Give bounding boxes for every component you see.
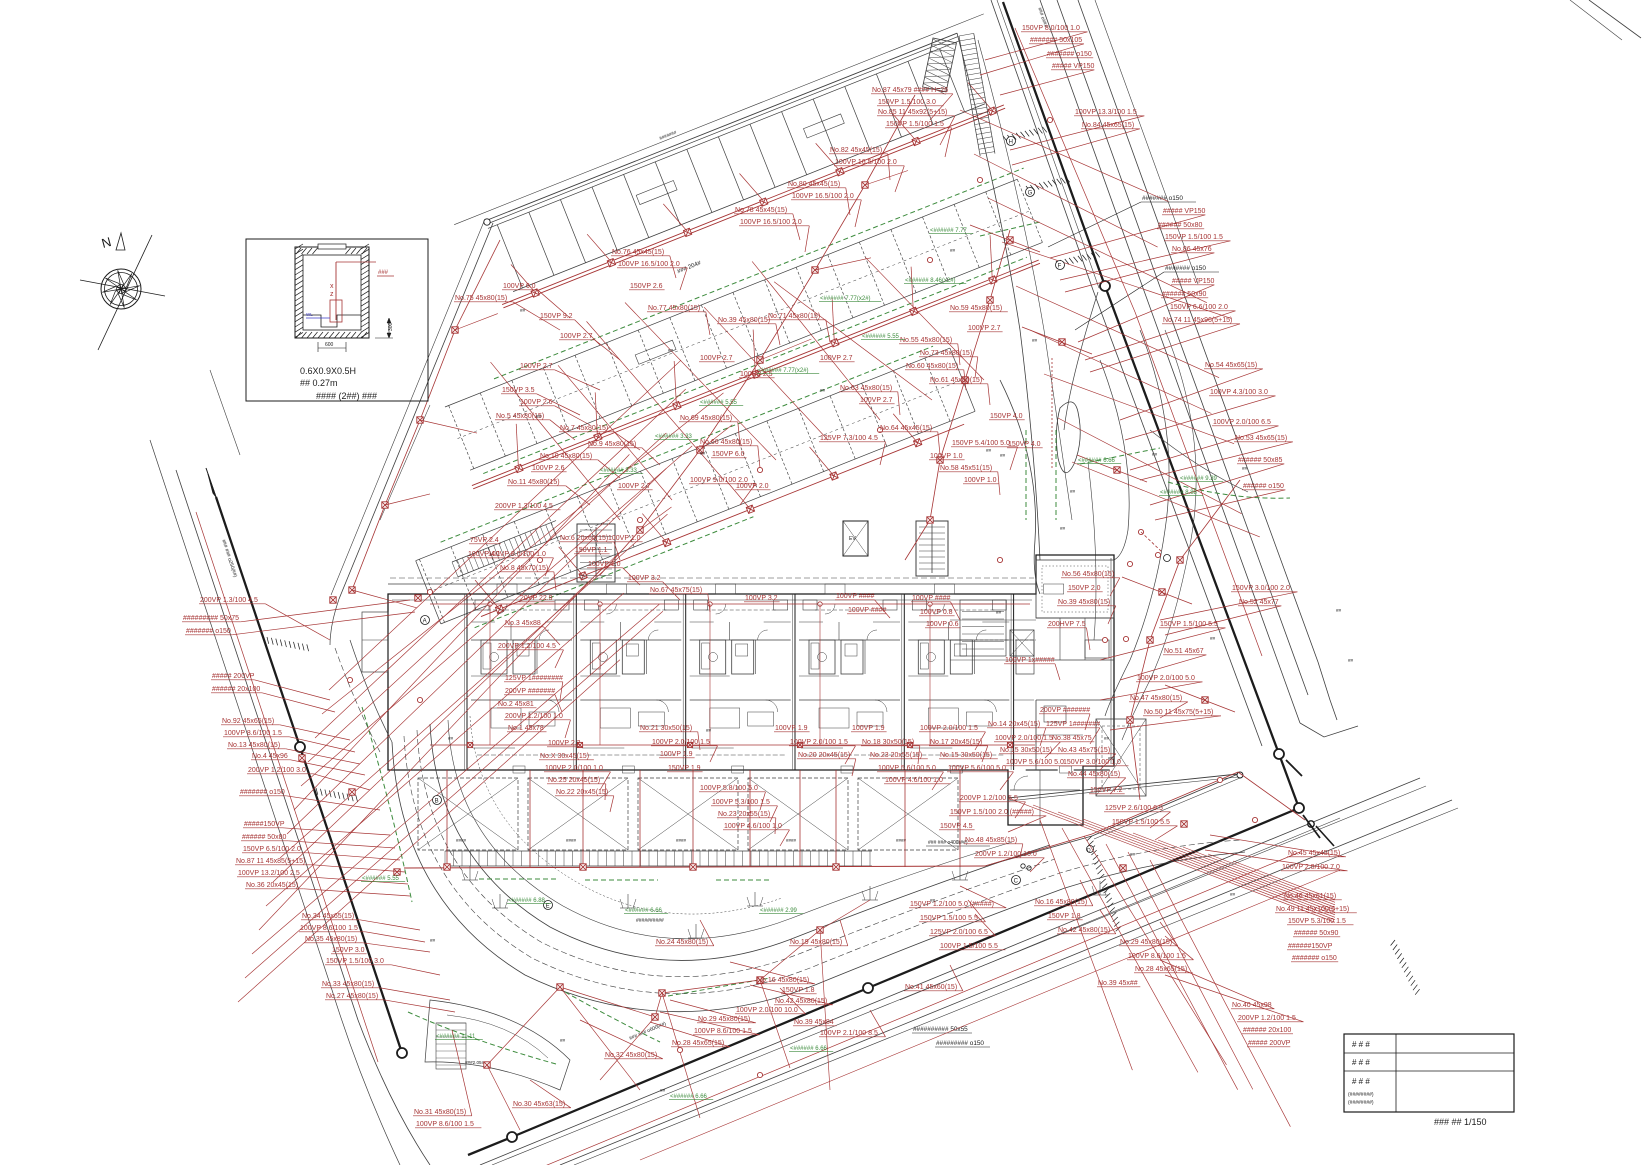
svg-text:##: ## bbox=[700, 451, 706, 456]
svg-text:###### 50x90: ###### 50x90 bbox=[1294, 930, 1338, 937]
svg-text:No.66 45x80(15): No.66 45x80(15) bbox=[700, 439, 752, 446]
svg-text:200VP 1.3/100 4.5: 200VP 1.3/100 4.5 bbox=[200, 597, 258, 604]
svg-text:No.17 20x45(15): No.17 20x45(15) bbox=[930, 739, 982, 746]
svg-text:No.1 45x78: No.1 45x78 bbox=[508, 725, 544, 732]
svg-text:No.4 45x96: No.4 45x96 bbox=[252, 753, 288, 760]
svg-text:150VP 5.3/100 1.5: 150VP 5.3/100 1.5 bbox=[1288, 918, 1346, 925]
svg-text:100VP 3.2: 100VP 3.2 bbox=[745, 595, 778, 602]
svg-text:##: ## bbox=[986, 448, 992, 453]
svg-text:<###### 8.46(x2#): <###### 8.46(x2#) bbox=[905, 278, 956, 284]
svg-text:##: ## bbox=[430, 938, 436, 943]
svg-text:150VP 2.0: 150VP 2.0 bbox=[1068, 585, 1101, 592]
svg-text:No.87 45x79 #### H=26: No.87 45x79 #### H=26 bbox=[872, 87, 948, 94]
svg-text:######### 50x75: ######### 50x75 bbox=[183, 615, 239, 622]
svg-text:No.53 45x65(15): No.53 45x65(15) bbox=[1235, 435, 1287, 442]
svg-text:100VP 2.7: 100VP 2.7 bbox=[968, 325, 1001, 332]
svg-text:<###### 3.33: <###### 3.33 bbox=[600, 468, 638, 474]
svg-text:150VP 1.5/100 3.0: 150VP 1.5/100 3.0 bbox=[878, 99, 936, 106]
svg-text:150VP 8.0/100 1.0: 150VP 8.0/100 1.0 bbox=[1022, 25, 1080, 32]
svg-text:No.X 30x45(15): No.X 30x45(15) bbox=[540, 753, 589, 760]
svg-text:100VP 5.8/100 5.0: 100VP 5.8/100 5.0 bbox=[700, 785, 758, 792]
svg-text:200VP 1.2/100 5.5: 200VP 1.2/100 5.5 bbox=[960, 795, 1018, 802]
svg-text:##: ## bbox=[930, 898, 936, 903]
svg-text:####### o150: ####### o150 bbox=[240, 789, 285, 796]
svg-text:150VP 3.0/100 2.0: 150VP 3.0/100 2.0 bbox=[1232, 585, 1290, 592]
svg-text:100VP 0.6: 100VP 0.6 bbox=[926, 621, 959, 628]
svg-text:z: z bbox=[330, 291, 334, 298]
svg-text:150VP 2.6: 150VP 2.6 bbox=[630, 283, 663, 290]
svg-text:No.71 45x80(15): No.71 45x80(15) bbox=[768, 313, 820, 320]
svg-text:100VP ####: 100VP #### bbox=[912, 595, 951, 602]
svg-text:100VP 1.9: 100VP 1.9 bbox=[660, 751, 693, 758]
svg-text:##: ## bbox=[1108, 756, 1114, 761]
svg-text:####### o150: ####### o150 bbox=[1165, 265, 1206, 272]
svg-text:150VP 7.2: 150VP 7.2 bbox=[1090, 787, 1123, 794]
svg-text:100VP 6.0: 100VP 6.0 bbox=[503, 283, 536, 290]
svg-text:<###### 6.66: <###### 6.66 bbox=[625, 908, 663, 914]
svg-text:150VP 1.2/100 5.0 (#####): 150VP 1.2/100 5.0 (#####) bbox=[910, 901, 994, 908]
svg-text:No.20 20x45(15): No.20 20x45(15) bbox=[798, 752, 850, 759]
svg-text:No.15 30x50(15): No.15 30x50(15) bbox=[940, 752, 992, 759]
svg-text:No.2 45x81: No.2 45x81 bbox=[498, 701, 534, 708]
svg-text:##########: ########## bbox=[636, 918, 664, 924]
svg-text:##: ## bbox=[820, 388, 826, 393]
svg-text:No.52 45x77: No.52 45x77 bbox=[1239, 599, 1279, 606]
svg-text:<###### 6.66: <###### 6.66 bbox=[1078, 458, 1116, 464]
svg-text:No.74 11 45x96(5+15): No.74 11 45x96(5+15) bbox=[1163, 317, 1232, 324]
svg-text:<###### 5.55: <###### 5.55 bbox=[700, 400, 738, 406]
svg-text:125VP 1#######: 125VP 1####### bbox=[1046, 721, 1100, 728]
svg-text:No.6 20x60(15): No.6 20x60(15) bbox=[560, 535, 608, 542]
svg-text:100VP 2.7: 100VP 2.7 bbox=[700, 355, 733, 362]
svg-text:No.3 45x88: No.3 45x88 bbox=[505, 620, 541, 627]
svg-text:##: ## bbox=[1152, 452, 1158, 457]
svg-text:100VP 16.5/100 2.0: 100VP 16.5/100 2.0 bbox=[740, 219, 802, 226]
svg-text:No.42 45x80(15): No.42 45x80(15) bbox=[1058, 927, 1110, 934]
svg-text:No.49 11 45x100(5+15): No.49 11 45x100(5+15) bbox=[1276, 906, 1349, 913]
svg-text:<###### 7.77(x2#): <###### 7.77(x2#) bbox=[820, 296, 871, 302]
svg-text:##: ## bbox=[1000, 453, 1006, 458]
svg-text:###### 50x90: ###### 50x90 bbox=[1162, 291, 1206, 298]
svg-text:No.39 45x80(15): No.39 45x80(15) bbox=[1058, 599, 1110, 606]
svg-text:No.28 45x65(15): No.28 45x65(15) bbox=[1135, 966, 1187, 973]
svg-text:No.60 45x80(15): No.60 45x80(15) bbox=[906, 363, 958, 370]
svg-text:100VP 4.6/100 1.0: 100VP 4.6/100 1.0 bbox=[724, 823, 782, 830]
svg-text:No.82 45x45(15): No.82 45x45(15) bbox=[830, 147, 882, 154]
svg-text:No.25 20x45(15): No.25 20x45(15) bbox=[548, 777, 600, 784]
svg-text:100VP 2.0/100 1.5: 100VP 2.0/100 1.5 bbox=[790, 739, 848, 746]
svg-text:<###### 7.77(x2#): <###### 7.77(x2#) bbox=[758, 368, 809, 374]
svg-text:No.69 45x80(15): No.69 45x80(15) bbox=[680, 415, 732, 422]
svg-text:100VP 5.3/100 1.5: 100VP 5.3/100 1.5 bbox=[712, 799, 770, 806]
svg-text:No.92 45x65(15): No.92 45x65(15) bbox=[222, 718, 274, 725]
svg-text:### ## 1/150: ### ## 1/150 bbox=[1434, 1117, 1487, 1127]
svg-text:100VP 2.0/100 10.0: 100VP 2.0/100 10.0 bbox=[736, 1007, 798, 1014]
svg-text:100VP 2.7: 100VP 2.7 bbox=[560, 333, 593, 340]
svg-text:##: ## bbox=[1348, 658, 1354, 663]
svg-text:No.43 45x75(15): No.43 45x75(15) bbox=[1058, 747, 1110, 754]
svg-text:100VP 8.0/100 1.0: 100VP 8.0/100 1.0 bbox=[488, 551, 546, 558]
svg-text:No.27 45x80(15): No.27 45x80(15) bbox=[326, 993, 378, 1000]
svg-text:No.86 45x76: No.86 45x76 bbox=[1172, 246, 1212, 253]
svg-text:100VP 2.0/100 7.0: 100VP 2.0/100 7.0 bbox=[1282, 864, 1340, 871]
svg-text:####### o150: ####### o150 bbox=[186, 628, 231, 635]
svg-text:100VP 1.0: 100VP 1.0 bbox=[930, 453, 963, 460]
svg-text:No.10 45x80(15): No.10 45x80(15) bbox=[540, 453, 592, 460]
svg-text:No.44 45x80(15): No.44 45x80(15) bbox=[1068, 771, 1120, 778]
svg-text:###### 20x100: ###### 20x100 bbox=[1243, 1027, 1291, 1034]
svg-text:<###### 6.66: <###### 6.66 bbox=[670, 1094, 708, 1100]
svg-text:No.56 45x80(15): No.56 45x80(15) bbox=[1062, 571, 1114, 578]
svg-text:150VP 1.5/100 5.5: 150VP 1.5/100 5.5 bbox=[920, 915, 978, 922]
svg-text:##: ## bbox=[1230, 892, 1236, 897]
svg-text:200VP 1.2/100 3.0: 200VP 1.2/100 3.0 bbox=[248, 767, 306, 774]
svg-text:100VP 8.6/100 1.5: 100VP 8.6/100 1.5 bbox=[300, 925, 358, 932]
svg-text:150VP 1.5/100 1.5: 150VP 1.5/100 1.5 bbox=[1165, 234, 1223, 241]
svg-text:100VP 1.0: 100VP 1.0 bbox=[964, 477, 997, 484]
svg-text:100VP 5.6/100 5.0: 100VP 5.6/100 5.0 bbox=[878, 765, 936, 772]
svg-text:########## 50x55: ########## 50x55 bbox=[913, 1026, 968, 1033]
svg-text:100VP 5.6/100 5.0: 100VP 5.6/100 5.0 bbox=[1006, 759, 1064, 766]
svg-text:<###### 11.11: <###### 11.11 bbox=[436, 1034, 476, 1040]
svg-text:F: F bbox=[1058, 264, 1062, 270]
svg-text:100VP 1.9: 100VP 1.9 bbox=[852, 725, 885, 732]
svg-text:No.39 45x##: No.39 45x## bbox=[1098, 980, 1138, 987]
svg-text:125VP 2.0/100 6.5: 125VP 2.0/100 6.5 bbox=[930, 929, 988, 936]
svg-text:No.80 45x45(15): No.80 45x45(15) bbox=[788, 181, 840, 188]
svg-text:No.78 45x45(15): No.78 45x45(15) bbox=[735, 207, 787, 214]
svg-text:#####150VP: #####150VP bbox=[244, 821, 285, 828]
svg-text:100VP 1.0: 100VP 1.0 bbox=[588, 561, 621, 568]
svg-text:No.47 45x80(15): No.47 45x80(15) bbox=[1130, 695, 1182, 702]
svg-text:100VP 8.6/100 1.5: 100VP 8.6/100 1.5 bbox=[416, 1121, 474, 1128]
svg-text:No.31 45x80(15): No.31 45x80(15) bbox=[414, 1109, 466, 1116]
svg-text:D: D bbox=[1087, 848, 1091, 854]
svg-text:100VP 2.7: 100VP 2.7 bbox=[860, 397, 893, 404]
svg-text:No.29 45x80(15): No.29 45x80(15) bbox=[1120, 939, 1172, 946]
svg-text:100VP 2.0/100 1.0: 100VP 2.0/100 1.0 bbox=[545, 765, 603, 772]
svg-text:#### (2##) ###: #### (2##) ### bbox=[316, 391, 377, 401]
svg-text:150VP 1.5/100 5.5: 150VP 1.5/100 5.5 bbox=[1160, 621, 1218, 628]
svg-text:<###### 5.55: <###### 5.55 bbox=[362, 876, 400, 882]
svg-text:150VP 1.5/100 3.0: 150VP 1.5/100 3.0 bbox=[326, 958, 384, 965]
svg-text:<###### 9.39: <###### 9.39 bbox=[1180, 476, 1218, 482]
svg-text:125VP 1########: 125VP 1######## bbox=[505, 675, 563, 682]
svg-text:125VP 7.3/100 4.5: 125VP 7.3/100 4.5 bbox=[820, 435, 878, 442]
svg-text:<###### 6.88: <###### 6.88 bbox=[508, 898, 546, 904]
svg-text:# # #: # # # bbox=[1352, 1040, 1370, 1049]
svg-text:150VP 4.0: 150VP 4.0 bbox=[990, 413, 1023, 420]
svg-text:C: C bbox=[1014, 879, 1019, 885]
svg-text:######### o150: ######### o150 bbox=[936, 1040, 984, 1047]
svg-text:150VP 4.0: 150VP 4.0 bbox=[1008, 441, 1041, 448]
svg-text:200VP #######: 200VP ####### bbox=[505, 688, 555, 695]
svg-text:####: #### bbox=[566, 838, 577, 843]
svg-text:100VP 1.9: 100VP 1.9 bbox=[775, 725, 808, 732]
svg-text:##: ## bbox=[1210, 636, 1216, 641]
svg-text:No.23 20x55(15): No.23 20x55(15) bbox=[870, 752, 922, 759]
svg-text:######150VP: ######150VP bbox=[1288, 943, 1333, 950]
svg-text:150VP 1.5/100 5.5: 150VP 1.5/100 5.5 bbox=[1112, 819, 1170, 826]
svg-text:100VP 8.6/100 1.5: 100VP 8.6/100 1.5 bbox=[1128, 953, 1186, 960]
svg-text:75VP 2.4: 75VP 2.4 bbox=[470, 537, 499, 544]
svg-text:200HVP 7.5: 200HVP 7.5 bbox=[1048, 621, 1086, 628]
svg-text:##: ## bbox=[706, 728, 712, 733]
svg-text:No.18 30x50(15): No.18 30x50(15) bbox=[862, 739, 914, 746]
svg-text:No.34 45x65(15): No.34 45x65(15) bbox=[302, 913, 354, 920]
svg-text:No.46 45x61(15): No.46 45x61(15) bbox=[1284, 893, 1336, 900]
svg-text:200VP 1.2/100 4.5: 200VP 1.2/100 4.5 bbox=[498, 643, 556, 650]
svg-text:###### 20x100: ###### 20x100 bbox=[212, 686, 260, 693]
svg-text:##: ## bbox=[660, 1088, 666, 1093]
svg-text:100VP 4.6/100 1.0: 100VP 4.6/100 1.0 bbox=[885, 777, 943, 784]
svg-text:No.8 45x70(15): No.8 45x70(15) bbox=[500, 565, 548, 572]
svg-text:100VP 16.5/100 2.0: 100VP 16.5/100 2.0 bbox=[835, 159, 897, 166]
svg-text:<###### 7.77: <###### 7.77 bbox=[930, 228, 968, 234]
svg-text:No.77 45x80(15): No.77 45x80(15) bbox=[648, 305, 700, 312]
svg-text:H: H bbox=[1009, 140, 1013, 146]
svg-text:###### 50x80: ###### 50x80 bbox=[242, 834, 286, 841]
svg-text:<###### 8.88: <###### 8.88 bbox=[1160, 490, 1198, 496]
svg-text:##: ## bbox=[1070, 489, 1076, 494]
svg-text:100VP 2.0/100 6.5: 100VP 2.0/100 6.5 bbox=[1213, 419, 1271, 426]
svg-text:###### 50x85: ###### 50x85 bbox=[1238, 457, 1282, 464]
svg-text:##### VP150: ##### VP150 bbox=[1172, 278, 1215, 285]
svg-text:100VP 2.0/100 1.5: 100VP 2.0/100 1.5 bbox=[920, 725, 978, 732]
svg-text:<###### 6.66: <###### 6.66 bbox=[790, 1046, 828, 1052]
svg-text:100VP 2.6: 100VP 2.6 bbox=[532, 465, 565, 472]
svg-text:100VP 8.6/100 1.5: 100VP 8.6/100 1.5 bbox=[224, 730, 282, 737]
svg-text:150VP 1.9: 150VP 1.9 bbox=[668, 765, 701, 772]
svg-text:## 0.27m: ## 0.27m bbox=[300, 378, 338, 388]
svg-text:# # #: # # # bbox=[1352, 1058, 1370, 1067]
svg-text:150VP 1.1: 150VP 1.1 bbox=[575, 547, 608, 554]
svg-text:No.19 45x80(15): No.19 45x80(15) bbox=[790, 939, 842, 946]
svg-text:###: ### bbox=[378, 270, 389, 276]
svg-text:100VP 3.2: 100VP 3.2 bbox=[628, 575, 661, 582]
svg-text:100VP 16.5/100 2.0: 100VP 16.5/100 2.0 bbox=[792, 193, 854, 200]
svg-text:(########): (########) bbox=[1348, 1092, 1374, 1098]
svg-text:100VP ####: 100VP #### bbox=[836, 593, 875, 600]
svg-text:EV: EV bbox=[849, 536, 856, 542]
svg-text:No.59 45x80(15): No.59 45x80(15) bbox=[950, 305, 1002, 312]
svg-text:No.64 45x45(15): No.64 45x45(15) bbox=[880, 425, 932, 432]
svg-text:##: ## bbox=[560, 1038, 566, 1043]
svg-text:100VP 13.2/100 2.5: 100VP 13.2/100 2.5 bbox=[238, 870, 300, 877]
svg-text:##### 200VP: ##### 200VP bbox=[212, 673, 255, 680]
svg-text:100VP 2.0/100 5.0: 100VP 2.0/100 5.0 bbox=[1137, 675, 1195, 682]
svg-text:No.39 45x84: No.39 45x84 bbox=[794, 1019, 834, 1026]
svg-text:No.87 11 45x85(5+15): No.87 11 45x85(5+15) bbox=[236, 858, 305, 865]
svg-text:No.55 45x80(15): No.55 45x80(15) bbox=[900, 337, 952, 344]
svg-text:100VP 2.0/100 1.5: 100VP 2.0/100 1.5 bbox=[995, 735, 1053, 742]
svg-text:150VP 1.5/100 2.0 (#####): 150VP 1.5/100 2.0 (#####) bbox=[950, 809, 1034, 816]
svg-text:<###### 3.33: <###### 3.33 bbox=[655, 434, 693, 440]
svg-text:##: ## bbox=[1336, 608, 1342, 613]
svg-text:100VP 1.0: 100VP 1.0 bbox=[608, 535, 641, 542]
svg-text:150VP 4.5: 150VP 4.5 bbox=[940, 823, 973, 830]
svg-text:No.67 45x75(15): No.67 45x75(15) bbox=[650, 587, 702, 594]
svg-text:0.6X0.9X0.5H: 0.6X0.9X0.5H bbox=[300, 366, 356, 376]
svg-text:No.75 45x80(15): No.75 45x80(15) bbox=[455, 295, 507, 302]
svg-text:100VP 2.2: 100VP 2.2 bbox=[548, 740, 581, 747]
svg-text:150VP 1.8: 150VP 1.8 bbox=[1048, 913, 1081, 920]
svg-text:##: ## bbox=[996, 610, 1002, 615]
svg-text:100VP 2.7: 100VP 2.7 bbox=[618, 483, 651, 490]
svg-text:200VP 1.2/100 1.0: 200VP 1.2/100 1.0 bbox=[505, 713, 563, 720]
svg-text:###### 50x80: ###### 50x80 bbox=[1158, 222, 1202, 229]
svg-text:No.23 20x55(15): No.23 20x55(15) bbox=[718, 811, 770, 818]
svg-text:E: E bbox=[546, 904, 550, 910]
svg-text:No.33 45x80(15): No.33 45x80(15) bbox=[322, 981, 374, 988]
svg-text:####: #### bbox=[786, 838, 797, 843]
svg-text:No.76 45x45(15): No.76 45x45(15) bbox=[612, 249, 664, 256]
svg-text:150VP 1.5/100 1.5: 150VP 1.5/100 1.5 bbox=[886, 121, 944, 128]
svg-text:##: ## bbox=[520, 308, 526, 313]
svg-text:####: #### bbox=[676, 838, 687, 843]
svg-text:B: B bbox=[435, 799, 439, 805]
svg-text:No.15 30x50(15): No.15 30x50(15) bbox=[1000, 747, 1052, 754]
svg-text:600: 600 bbox=[325, 342, 334, 348]
svg-text:150VP 1.8: 150VP 1.8 bbox=[782, 987, 815, 994]
svg-text:150VP 5.4/100 5.0: 150VP 5.4/100 5.0 bbox=[952, 440, 1010, 447]
svg-text:No.63 45x80(15): No.63 45x80(15) bbox=[840, 385, 892, 392]
svg-text:##: ## bbox=[1130, 852, 1136, 857]
svg-text:No.84 45x65(15): No.84 45x65(15) bbox=[1082, 122, 1134, 129]
svg-text:100VP 2.0: 100VP 2.0 bbox=[736, 483, 769, 490]
svg-text:####### o150: ####### o150 bbox=[1047, 51, 1092, 58]
svg-text:##: ## bbox=[1032, 338, 1038, 343]
svg-text:No.32 45x80(15): No.32 45x80(15) bbox=[605, 1052, 657, 1059]
svg-text:150VP 6.6/100 2.0: 150VP 6.6/100 2.0 bbox=[1170, 304, 1228, 311]
svg-text:150VP 3.5: 150VP 3.5 bbox=[502, 387, 535, 394]
svg-text:No.11 45x80(15): No.11 45x80(15) bbox=[508, 479, 560, 486]
svg-text:150VP 3.0: 150VP 3.0 bbox=[332, 947, 365, 954]
svg-text:100VP 1x#####: 100VP 1x##### bbox=[1005, 657, 1055, 664]
svg-text:No.16 45x80(15): No.16 45x80(15) bbox=[1035, 899, 1087, 906]
svg-text:##: ## bbox=[668, 348, 674, 353]
svg-text:No.85 11 45x92(5+15): No.85 11 45x92(5+15) bbox=[878, 109, 947, 116]
svg-text:<###### 5.55: <###### 5.55 bbox=[862, 334, 900, 340]
svg-text:####### 50x105: ####### 50x105 bbox=[1030, 37, 1082, 44]
svg-text:No.21 30x50(15): No.21 30x50(15) bbox=[640, 725, 692, 732]
svg-text:No.36 20x45(15): No.36 20x45(15) bbox=[246, 882, 298, 889]
svg-text:##: ## bbox=[448, 736, 454, 741]
svg-text:##: ## bbox=[950, 248, 956, 253]
svg-text:100VP ####: 100VP #### bbox=[848, 607, 887, 614]
svg-text:##### 200VP: ##### 200VP bbox=[1248, 1040, 1291, 1047]
svg-text:<###### 2.99: <###### 2.99 bbox=[760, 908, 798, 914]
svg-text:WL: WL bbox=[306, 312, 313, 317]
svg-text:##### VP150: ##### VP150 bbox=[1052, 63, 1095, 70]
svg-text:G: G bbox=[1028, 191, 1033, 197]
svg-text:No.39 45x80(15): No.39 45x80(15) bbox=[718, 317, 770, 324]
svg-text:No.28 45x65(15): No.28 45x65(15) bbox=[672, 1040, 724, 1047]
svg-text:200VP #######: 200VP ####### bbox=[1040, 707, 1090, 714]
svg-text:100VP 8.6/100 1.5: 100VP 8.6/100 1.5 bbox=[694, 1028, 752, 1035]
svg-text:No.7 45x80(15): No.7 45x80(15) bbox=[560, 425, 608, 432]
svg-text:No.73 45x80(15): No.73 45x80(15) bbox=[920, 350, 972, 357]
svg-text:##: ## bbox=[536, 414, 542, 419]
svg-text:100VP 2.7: 100VP 2.7 bbox=[520, 363, 553, 370]
svg-text:No.24 45x80(15): No.24 45x80(15) bbox=[656, 939, 708, 946]
svg-text:150VP 6.5/100 2.0: 150VP 6.5/100 2.0 bbox=[243, 846, 301, 853]
svg-text:100VP 2.6: 100VP 2.6 bbox=[520, 399, 553, 406]
svg-text:No.58 45x51(15): No.58 45x51(15) bbox=[940, 465, 992, 472]
svg-text:No.54 45x65(15): No.54 45x65(15) bbox=[1205, 362, 1257, 369]
svg-text:200VP 1.3/100 4.5: 200VP 1.3/100 4.5 bbox=[495, 503, 553, 510]
svg-text:100VP 16.5/100 2.0: 100VP 16.5/100 2.0 bbox=[618, 261, 680, 268]
svg-text:No.14 20x45(15): No.14 20x45(15) bbox=[988, 721, 1040, 728]
svg-text:##: ## bbox=[1242, 466, 1248, 471]
svg-text:No.30 45x63(15): No.30 45x63(15) bbox=[513, 1101, 565, 1108]
svg-text:##### VP150: ##### VP150 bbox=[1163, 208, 1206, 215]
svg-text:200VP 1.2/100 10.0: 200VP 1.2/100 10.0 bbox=[975, 851, 1037, 858]
svg-text:No.61 45x80(15): No.61 45x80(15) bbox=[930, 377, 982, 384]
svg-text:##: ## bbox=[1104, 736, 1110, 741]
svg-text:125VP 2.6/100 6.5: 125VP 2.6/100 6.5 bbox=[1105, 805, 1163, 812]
svg-text:No.9 45x80(15): No.9 45x80(15) bbox=[588, 441, 636, 448]
svg-text:100VP 2.7: 100VP 2.7 bbox=[820, 355, 853, 362]
svg-text:(########): (########) bbox=[1348, 1100, 1374, 1106]
svg-text:A: A bbox=[423, 619, 427, 625]
svg-text:300: 300 bbox=[388, 322, 394, 331]
svg-text:No.50 11 45x75(5+15): No.50 11 45x75(5+15) bbox=[1144, 709, 1213, 716]
svg-text:100VP 5.6/100 5.0: 100VP 5.6/100 5.0 bbox=[948, 765, 1006, 772]
svg-text:No.22 20x45(15): No.22 20x45(15) bbox=[556, 789, 608, 796]
svg-text:####### o150: ####### o150 bbox=[1292, 955, 1337, 962]
svg-text:100VP 4.3/100 3.0: 100VP 4.3/100 3.0 bbox=[1210, 389, 1268, 396]
svg-text:150VP 6.0: 150VP 6.0 bbox=[712, 451, 745, 458]
svg-text:##: ## bbox=[1060, 526, 1066, 531]
svg-text:###### o150: ###### o150 bbox=[1243, 483, 1284, 490]
svg-text:####### o150: ####### o150 bbox=[1142, 195, 1183, 202]
svg-text:20VP 22.9: 20VP 22.9 bbox=[520, 595, 553, 602]
svg-text:100VP 2.0/100 1.5: 100VP 2.0/100 1.5 bbox=[652, 739, 710, 746]
svg-text:No.48 45x85(15): No.48 45x85(15) bbox=[965, 837, 1017, 844]
svg-text:No.38 45x75: No.38 45x75 bbox=[1052, 735, 1092, 742]
svg-text:No.41 45x60(15): No.41 45x60(15) bbox=[905, 984, 957, 991]
svg-text:100VP 2.1/100 8.5: 100VP 2.1/100 8.5 bbox=[820, 1030, 878, 1037]
svg-text:100VP 13.3/100 1.5: 100VP 13.3/100 1.5 bbox=[1075, 109, 1137, 116]
svg-text:x: x bbox=[330, 283, 334, 290]
svg-text:150VP 9.2: 150VP 9.2 bbox=[540, 313, 573, 320]
svg-text:No.51 45x67: No.51 45x67 bbox=[1164, 648, 1204, 655]
svg-text:No.45 45x45(15): No.45 45x45(15) bbox=[1288, 850, 1340, 857]
svg-text:100VP 0.8: 100VP 0.8 bbox=[920, 609, 953, 616]
svg-text:No.35 45x80(15): No.35 45x80(15) bbox=[305, 936, 357, 943]
svg-text:No.13 45x80(15): No.13 45x80(15) bbox=[228, 742, 280, 749]
svg-text:# # #: # # # bbox=[1352, 1077, 1370, 1086]
svg-text:100VP 1.5/100 5.5: 100VP 1.5/100 5.5 bbox=[940, 943, 998, 950]
